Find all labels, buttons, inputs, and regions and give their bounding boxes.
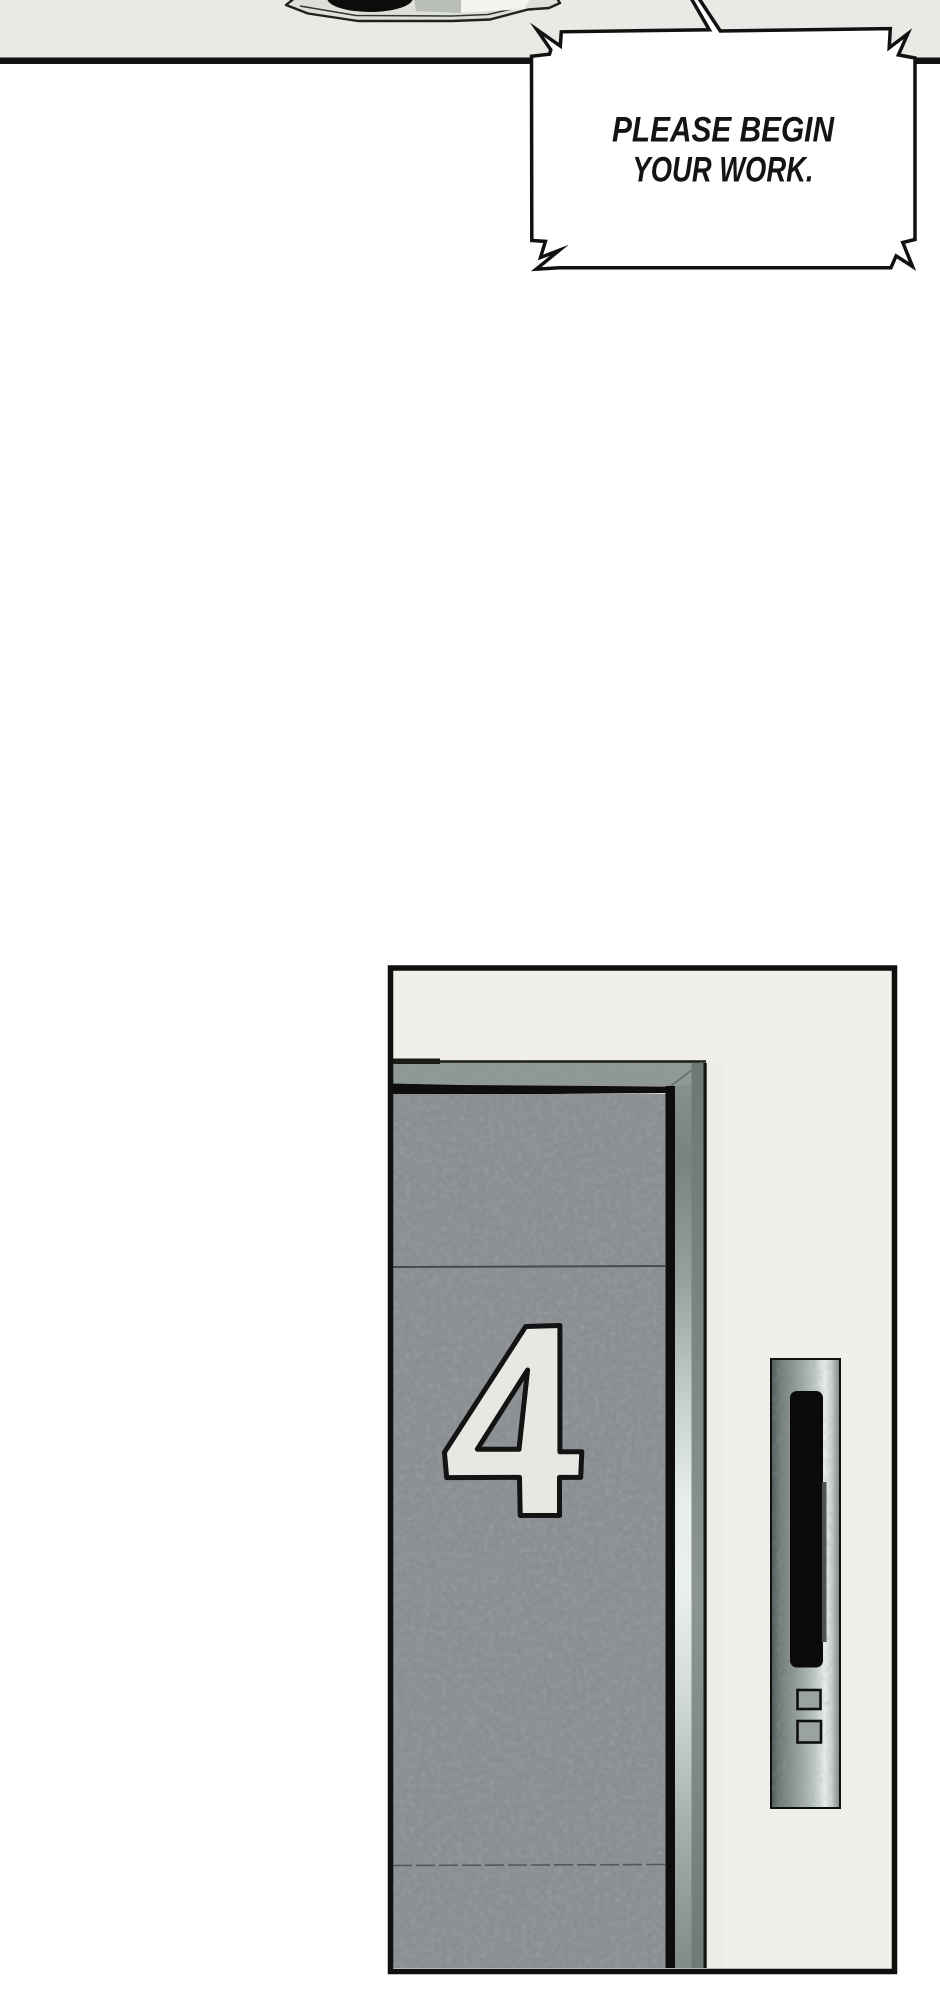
svg-text:YOUR WORK.: YOUR WORK. — [633, 151, 814, 190]
svg-text:PLEASE BEGIN: PLEASE BEGIN — [612, 111, 835, 150]
